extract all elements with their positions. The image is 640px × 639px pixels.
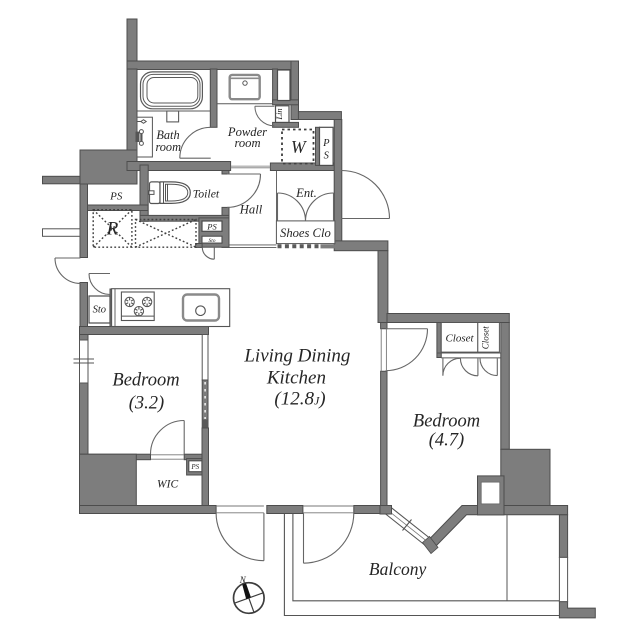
svg-text:N: N xyxy=(239,575,247,585)
svg-text:Living Dining: Living Dining xyxy=(243,346,350,367)
svg-text:Toilet: Toilet xyxy=(193,186,220,200)
svg-text:room: room xyxy=(155,140,181,154)
svg-text:Closet: Closet xyxy=(445,333,474,345)
svg-text:Bedroom: Bedroom xyxy=(413,412,480,432)
svg-text:Hall: Hall xyxy=(239,203,263,217)
svg-text:WIC: WIC xyxy=(157,479,178,491)
svg-text:(3.2): (3.2) xyxy=(129,394,164,414)
svg-text:Kitchen: Kitchen xyxy=(266,368,326,389)
svg-text:PS: PS xyxy=(206,222,217,232)
svg-text:Balcony: Balcony xyxy=(369,559,427,579)
svg-text:Ent.: Ent. xyxy=(295,186,317,200)
svg-text:PS: PS xyxy=(190,463,199,471)
svg-text:room: room xyxy=(234,136,260,150)
svg-text:W: W xyxy=(291,137,307,157)
svg-text:Shoes Clo: Shoes Clo xyxy=(280,226,331,240)
svg-text:Lin: Lin xyxy=(274,108,284,120)
svg-text:S: S xyxy=(324,150,330,161)
svg-text:Sto: Sto xyxy=(208,238,215,244)
svg-text:Bedroom: Bedroom xyxy=(112,371,179,391)
svg-text:R: R xyxy=(106,219,119,240)
svg-text:(4.7): (4.7) xyxy=(429,431,464,451)
svg-text:Sto: Sto xyxy=(93,305,106,316)
svg-text:P: P xyxy=(322,138,330,149)
svg-text:PS: PS xyxy=(109,191,123,203)
svg-text:Closet: Closet xyxy=(481,326,491,350)
